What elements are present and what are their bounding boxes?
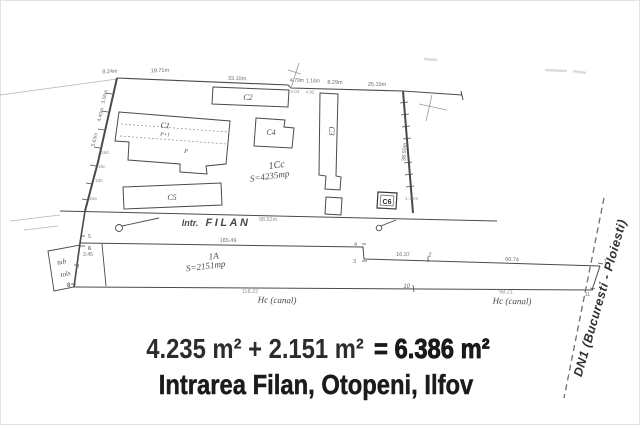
dim-strip-245: 2.45: [83, 252, 93, 258]
gate-swing-left: [122, 218, 159, 226]
point-4: 4: [354, 242, 357, 248]
dim-top-small-2: 4.92: [306, 90, 315, 95]
neighbour-line-top-left: [0, 79, 117, 95]
building-c1-label: C1: [160, 121, 170, 131]
dim-strip-9821: 98.21: [499, 290, 513, 296]
point-10: 10: [403, 284, 410, 290]
street-name-label: FILAN: [206, 217, 251, 229]
dim-strip-1637: 16.37: [396, 252, 410, 258]
building-c5-label: C5: [167, 193, 176, 202]
left-mark-1: 18d: [101, 150, 109, 155]
point-3: 3: [353, 259, 356, 265]
site-plan-svg: Intr. FILAN 98.52m 1Cc S=4235mp 1A S=215…: [0, 0, 640, 425]
dim-top-1: 8.24m: [102, 69, 118, 76]
point-2: 2: [427, 253, 432, 259]
road-top-line: [60, 211, 497, 221]
building-c2-label: C2: [243, 93, 252, 102]
dim-strip-165: 165.49: [220, 238, 237, 244]
parcel-1a-top-line: [80, 243, 600, 266]
point-5: 5: [88, 234, 91, 240]
dim-top-4: 4.79m: [290, 78, 304, 84]
point-11: 11: [585, 292, 590, 298]
left-mark-4: 18a: [89, 196, 97, 201]
dim-left-2: 4.40m: [97, 107, 106, 122]
building-c6-dim-label: 1.79m: [405, 196, 418, 202]
parcel-1cc-top-extension: [403, 91, 463, 100]
dim-top-7: 25.19m: [368, 82, 387, 88]
area-sum-result: = 6.386 m²: [374, 332, 490, 364]
street-length-label: 98.52m: [259, 217, 278, 223]
parcel-1cc-area: S=4235mp: [249, 168, 290, 183]
side-note-tub: tub: [56, 257, 67, 267]
side-note-tols: tols: [60, 269, 72, 279]
parcel-1a-divider: [102, 244, 106, 286]
gate-symbol-left: [116, 225, 123, 232]
dim-top-6: 8.29m: [327, 80, 343, 86]
area-sum-line: 4.235 m² + 2.151 m²= 6.386 m²: [146, 332, 490, 364]
utility-pole-marker: [288, 63, 301, 88]
canal-label-2: Hc (canal): [492, 296, 532, 307]
point-9: 9: [76, 264, 79, 270]
parcel-1a-bottom-line: [74, 287, 593, 290]
building-c6-label: C6: [383, 199, 392, 206]
left-mark-2: 18c: [98, 164, 106, 169]
street-prefix-label: Intr.: [182, 218, 199, 228]
neighbour-lines-left: [10, 215, 60, 230]
left-mark-3: 18b: [95, 178, 103, 183]
dim-top-3: 33.10m: [228, 76, 247, 83]
canal-label-1: Hc (canal): [257, 295, 297, 306]
gate-swing-right: [381, 220, 396, 226]
building-c1-note-label: P: [183, 149, 188, 155]
dim-strip-6074: 60.74: [505, 257, 519, 263]
building-c4-label: C4: [266, 128, 275, 137]
building-c3-outline: [319, 93, 341, 190]
dim-strip-11822: 118.22: [242, 289, 259, 295]
dim-left-1: 3.06m: [101, 89, 110, 104]
building-c3-annex-outline: [325, 197, 342, 215]
gate-symbol-right: [376, 225, 382, 231]
area-sum-operands: 4.235 m² + 2.151 m²: [146, 332, 364, 364]
parcel-1a-area: S=2151mp: [185, 259, 226, 274]
dn1-highway-label: DN1 (Bucuresti - Ploiesti): [571, 218, 629, 379]
dim-top-small-1: 4.04: [291, 89, 300, 94]
survey-cross-marker: [419, 95, 447, 121]
building-c1-eaves-lines: [120, 124, 228, 144]
point-6: 6: [88, 246, 91, 252]
building-c3-label: C3: [327, 126, 336, 135]
address-line: Intrarea Filan, Otopeni, Ilfov: [159, 368, 474, 400]
building-c1-storeys-label: P+1: [159, 132, 170, 139]
left-boundary-ticks: [82, 93, 112, 200]
dim-left-3: 5.63m: [91, 132, 100, 147]
dim-top-2: 19.71m: [151, 68, 170, 75]
dim-top-5: 1.14m: [306, 79, 320, 85]
cadastral-plan-page: Intr. FILAN 98.52m 1Cc S=4235mp 1A S=215…: [0, 0, 640, 425]
scan-artifact: [424, 59, 586, 73]
